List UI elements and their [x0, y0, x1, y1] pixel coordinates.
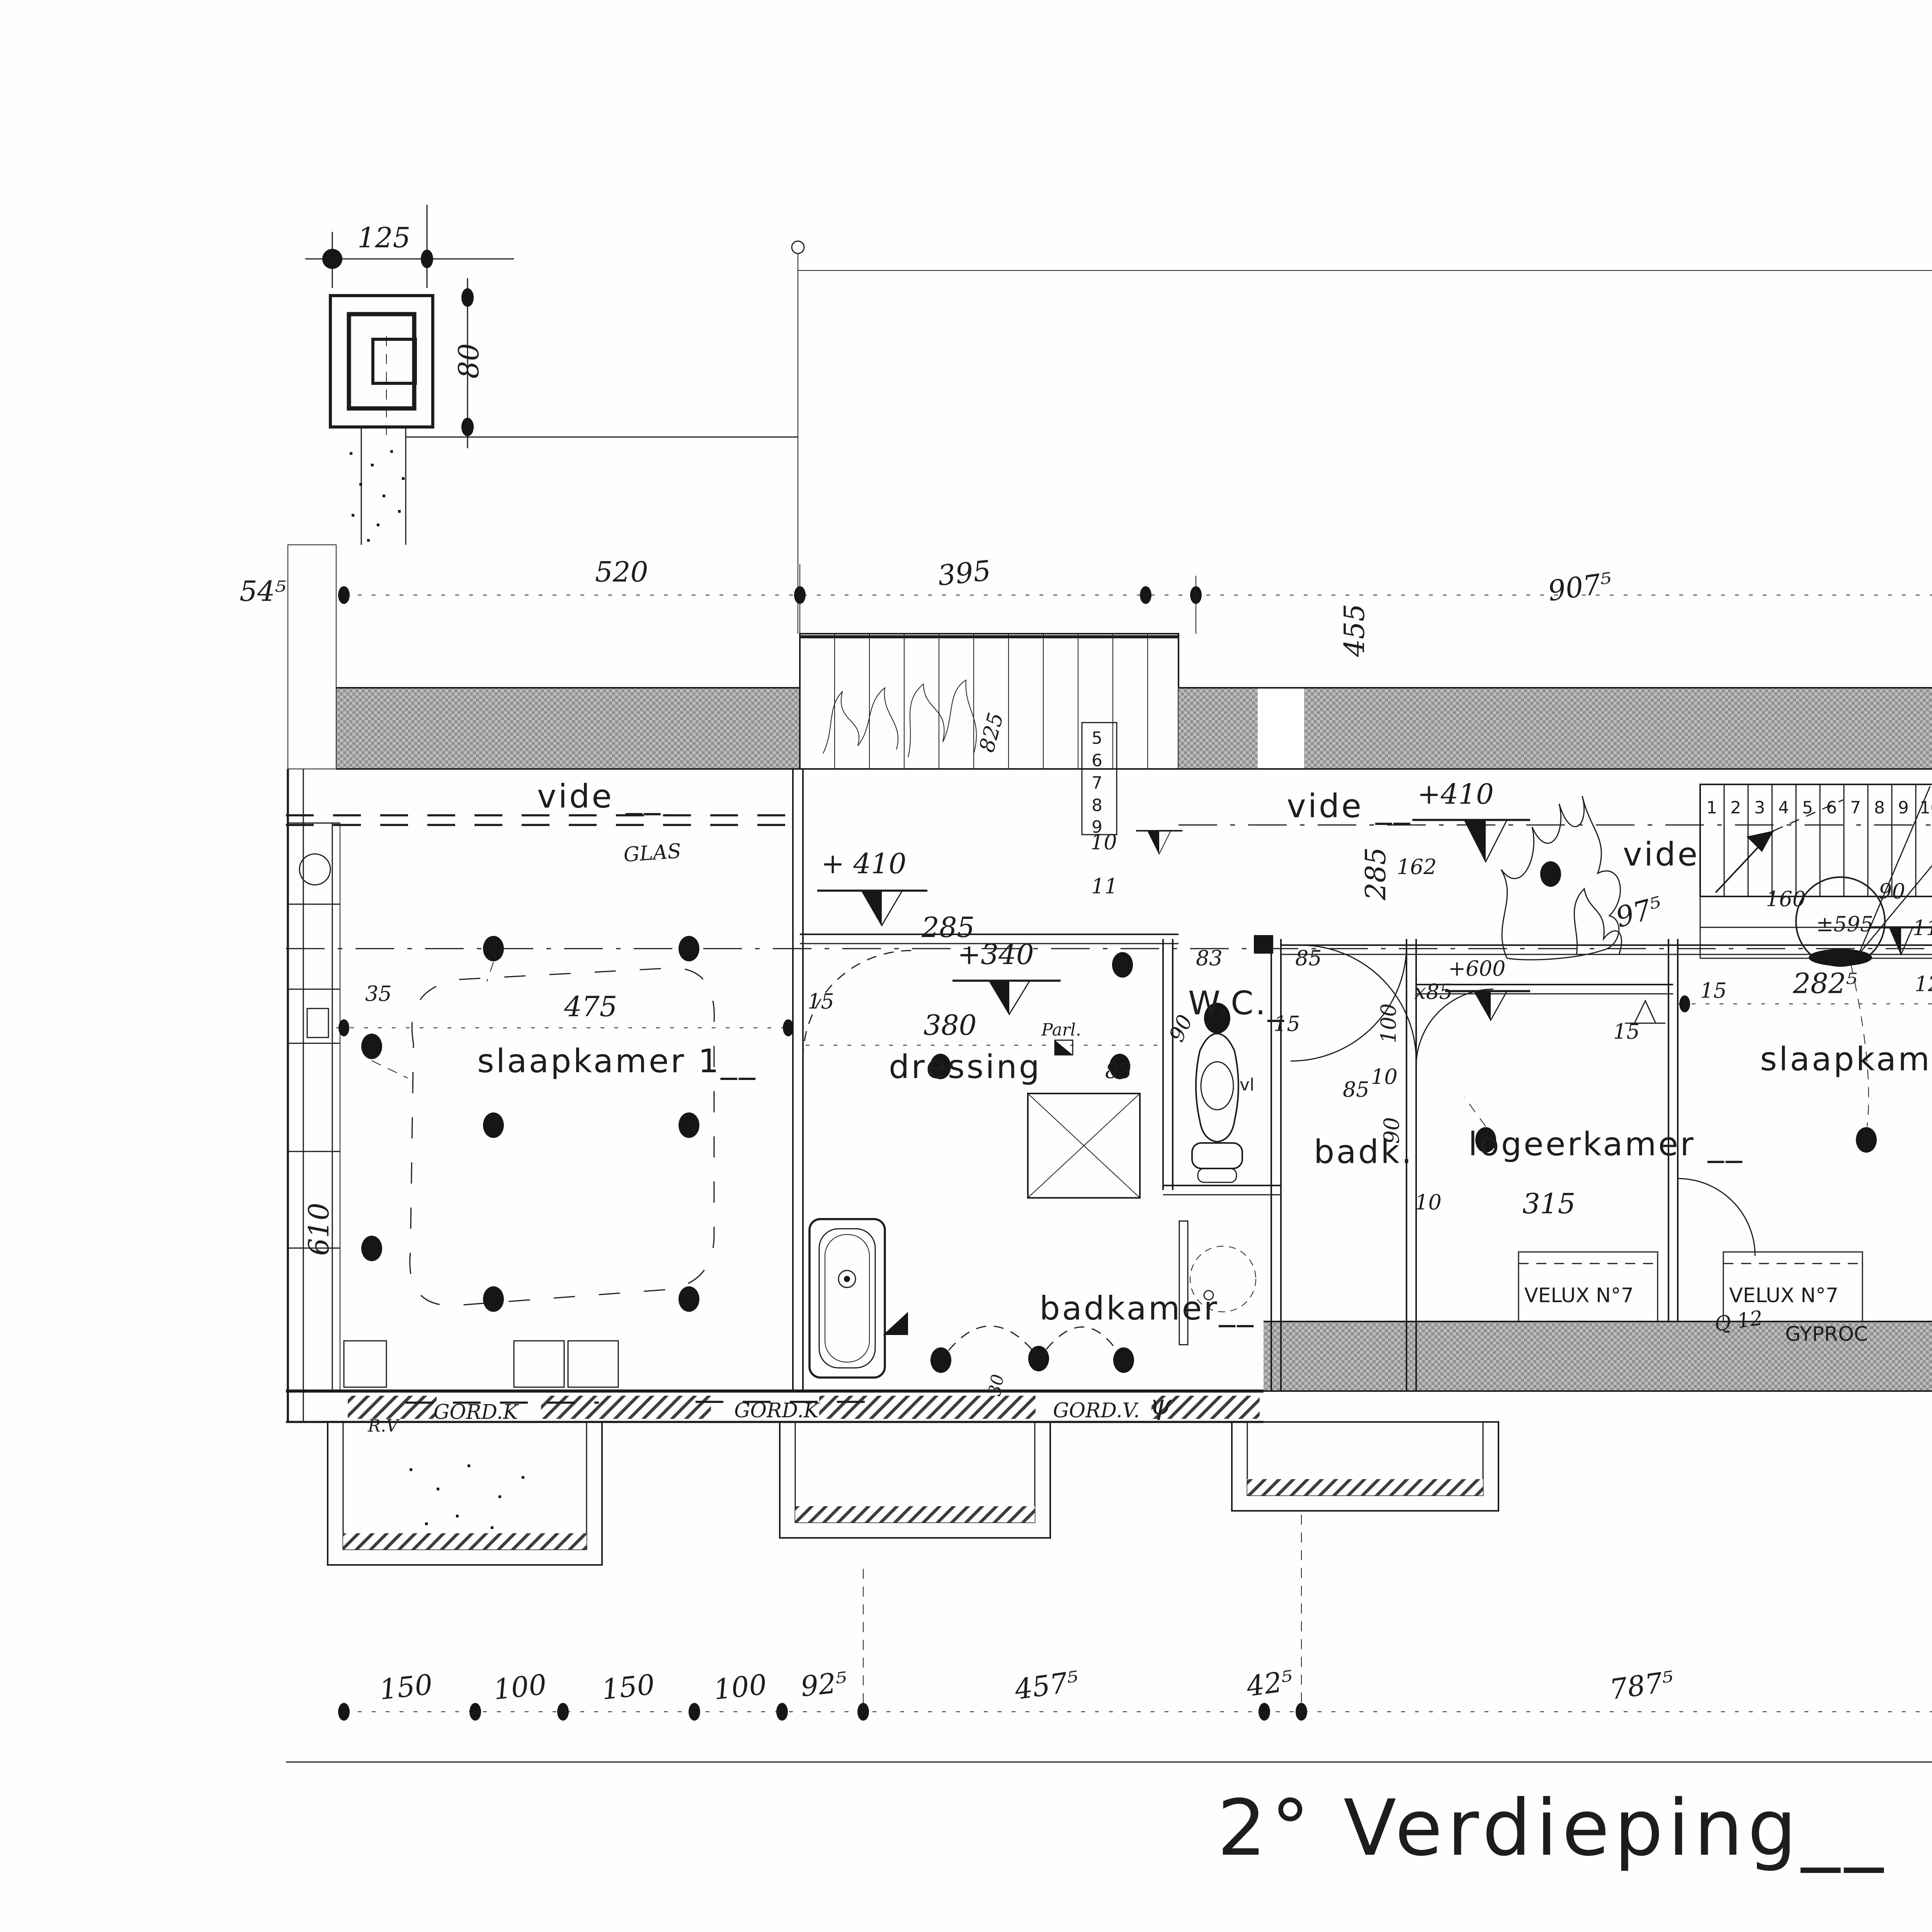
dim-10a: 10	[1371, 1065, 1398, 1089]
room-label-wc: W.C._	[1188, 984, 1286, 1022]
room-label-logeerkamer: logeerkamer __	[1468, 1125, 1744, 1163]
stair-lower-6: 6	[1092, 751, 1102, 770]
dim-30: 30	[985, 1373, 1008, 1398]
door-arc	[1678, 1179, 1755, 1256]
dim-10c: 10	[1415, 1190, 1442, 1214]
room-label-vide-right: vide	[1623, 835, 1699, 873]
stair-tread-2: 2	[1730, 798, 1741, 818]
level-410-left: + 410	[821, 847, 906, 880]
dim-15d: 15	[1613, 1019, 1640, 1044]
level-600: +600	[1448, 956, 1505, 981]
window-bays	[328, 1422, 1498, 1565]
chimney-detail: 125 80	[305, 205, 514, 542]
stair-lower-8: 8	[1092, 796, 1102, 815]
dim-475: 475	[564, 990, 617, 1023]
level-410-mid: +410	[1417, 778, 1494, 810]
stair-num-12: 12	[1915, 972, 1932, 996]
stair-lower-7: 7	[1092, 773, 1102, 793]
dim-bot-100b: 100	[712, 1668, 768, 1706]
stair-tread-1: 1	[1706, 798, 1717, 818]
dim-54: 54⁵	[240, 575, 286, 607]
drawing-title: 2° Verdieping__	[1217, 1783, 1888, 1873]
bedroom-closets	[344, 1341, 618, 1387]
dim-162: 162	[1397, 855, 1437, 879]
room-label-badkamer: badkamer__	[1039, 1289, 1255, 1327]
room-label-dressing: dressing	[889, 1048, 1041, 1086]
bathtub	[810, 1219, 908, 1378]
stair-tread-6: 6	[1826, 798, 1837, 818]
dim-top-520: 520	[595, 556, 648, 588]
stair-tread-9: 9	[1898, 798, 1909, 818]
psi-symbol: ψ	[1150, 1388, 1172, 1421]
dim-975: 97⁵	[1612, 890, 1666, 934]
dim-85a: 85	[1295, 946, 1322, 970]
room-label-vide-left: vide __	[537, 777, 662, 815]
dim-bot-150a: 150	[378, 1668, 434, 1706]
gordk-note-1: GORD.K	[434, 1401, 519, 1424]
level-circle-595: ±595	[1796, 877, 1885, 966]
curtain-notes: GORD.K GORD.K R.V GORD.V. ψ 30	[367, 1373, 1172, 1436]
gordk-note-2: GORD.K	[734, 1399, 820, 1422]
floor-plan-drawing: 125 80	[0, 0, 1932, 1932]
dim-825: 825	[975, 710, 1009, 755]
glas-note: GLAS	[623, 840, 682, 867]
page-border-lines	[286, 0, 1932, 1932]
dim-610: 610	[303, 1203, 335, 1256]
dim-100: 100	[1376, 1003, 1401, 1043]
room-label-slaapkamer2: slaapkamer 2_	[1760, 1040, 1932, 1078]
stair-lower-5: 5	[1092, 728, 1102, 748]
exterior-walls-top	[336, 634, 1932, 769]
stair-width-dim: 90	[1879, 879, 1905, 903]
dim-380: 380	[923, 1009, 976, 1041]
parl-note: Parl.	[1041, 1020, 1081, 1040]
stair-tread-5: 5	[1802, 798, 1813, 818]
dim-282: 282⁵	[1793, 967, 1857, 1000]
dim-83b: 83	[1105, 1059, 1132, 1083]
level-595-label: ±595	[1816, 912, 1873, 936]
stipple-texture	[410, 1464, 524, 1529]
dim-35: 35	[365, 981, 392, 1006]
stair-tread-4: 4	[1778, 798, 1789, 818]
stipple-texture	[350, 450, 405, 542]
dim-85b: 85	[1343, 1077, 1369, 1102]
dim-bot-7875: 787⁵	[1608, 1665, 1676, 1706]
bottom-dimension-string: 150 100 150 100 92⁵ 457⁵ 42⁵ 787⁵	[338, 1395, 1932, 1762]
rv-note: R.V	[367, 1416, 400, 1436]
blueprint-page: 125 80	[0, 0, 1932, 1932]
dim-top-395: 395	[936, 554, 992, 592]
stair-tread-8: 8	[1874, 798, 1885, 818]
sketch-plants	[908, 680, 976, 757]
dim-top-907: 907⁵	[1546, 566, 1614, 607]
dim-455: 455	[1338, 604, 1371, 657]
dim-bot-925: 92⁵	[799, 1666, 849, 1703]
dim-315: 315	[1522, 1187, 1575, 1220]
dim-10b: 10	[1090, 830, 1117, 854]
dim-bot-150b: 150	[600, 1668, 656, 1706]
dim-285b: 285	[921, 911, 975, 944]
dim-90c: 90	[1379, 1117, 1404, 1144]
chimney-height-dim: 80	[452, 343, 485, 379]
level-x85: x85	[1414, 980, 1452, 1004]
dressing-island	[1028, 1094, 1140, 1198]
top-dimension-string: 520 395 907⁵	[338, 554, 1932, 634]
toilet: vl	[1192, 1003, 1254, 1182]
toilet-note: vl	[1240, 1075, 1254, 1095]
gordv-note: GORD.V.	[1053, 1399, 1140, 1422]
left-service-strip	[288, 823, 340, 1391]
gyproc-note: GYPROC	[1785, 1323, 1868, 1346]
stair-run-dim: 160	[1766, 887, 1806, 911]
room-label-vide-mid: vide __	[1287, 787, 1412, 825]
velux-label-1: VELUX N°7	[1524, 1284, 1634, 1307]
dim-bot-100a: 100	[492, 1668, 548, 1706]
room-label-slaapkamer1: slaapkamer 1__	[477, 1042, 757, 1080]
dim-15a: 15	[808, 989, 834, 1014]
stair-tread-7: 7	[1850, 798, 1861, 818]
dim-15b: 15	[1274, 1012, 1300, 1036]
velux-label-2: VELUX N°7	[1729, 1284, 1838, 1307]
room-labels: vide __ vide __ vide slaapkamer 1__ dres…	[477, 777, 1932, 1327]
dim-83a: 83	[1196, 946, 1223, 970]
dim-15c: 15	[1700, 978, 1727, 1003]
dim-285a: 285	[1359, 847, 1392, 901]
dim-bot-425: 42⁵	[1244, 1664, 1295, 1703]
dim-bot-4575: 457⁵	[1012, 1665, 1081, 1706]
chimney-width-dim: 125	[357, 221, 410, 254]
stair-tread-3: 3	[1754, 798, 1765, 818]
